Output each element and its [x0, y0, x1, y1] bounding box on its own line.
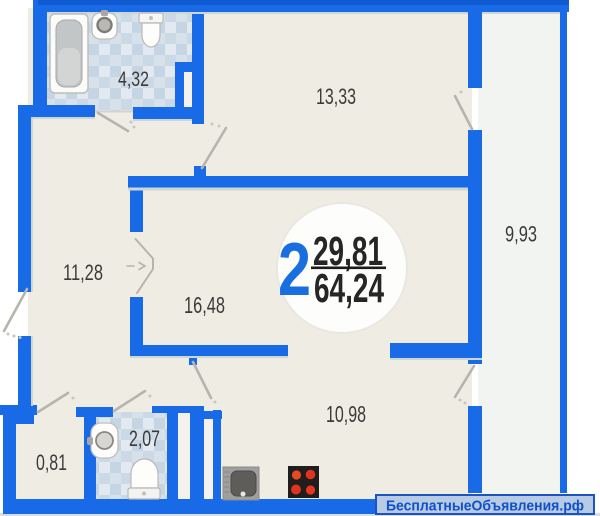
svg-text:БесплатныеОбъявления.рф: БесплатныеОбъявления.рф	[386, 498, 584, 515]
svg-text:13,33: 13,33	[316, 84, 356, 109]
svg-text:2,07: 2,07	[129, 426, 160, 451]
svg-text:0,81: 0,81	[36, 450, 67, 475]
svg-text:10,98: 10,98	[326, 401, 366, 427]
svg-text:2: 2	[278, 227, 311, 311]
svg-text:4,32: 4,32	[118, 68, 149, 91]
svg-text:64,24: 64,24	[314, 265, 384, 311]
svg-text:11,28: 11,28	[63, 260, 103, 285]
svg-text:9,93: 9,93	[505, 222, 537, 247]
svg-text:16,48: 16,48	[184, 292, 225, 318]
